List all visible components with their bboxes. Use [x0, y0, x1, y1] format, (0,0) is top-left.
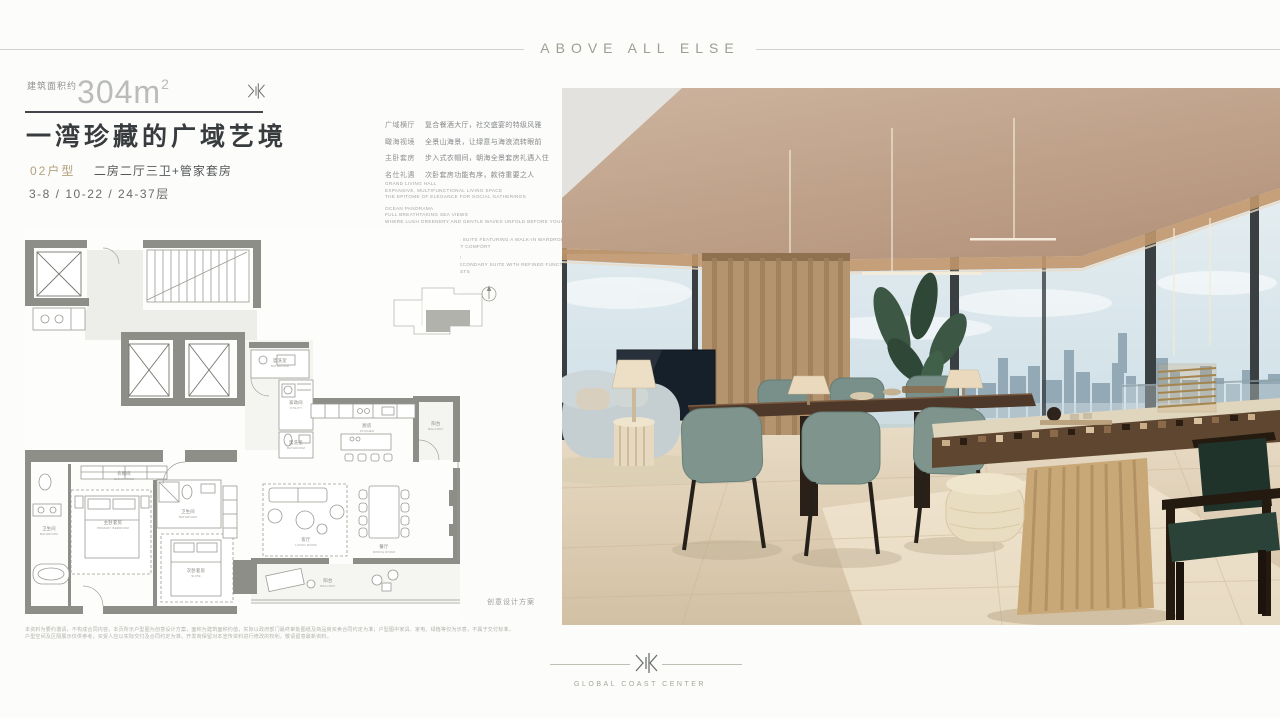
- room-label-bath2-en: BATHROOM: [287, 446, 305, 450]
- room-label-suite-en: SUITE: [191, 574, 201, 578]
- room-label-bath2: 盥洗室: [289, 439, 303, 446]
- room-label-suite: 次卧套房: [187, 567, 205, 574]
- feature-text: 全景山海景，让绿意与海浪流转眼前: [425, 137, 542, 147]
- disclaimer: 本资料为要约邀请，不构成合同内容。本页所示户型图为创意设计方案，面积为建筑面积约…: [25, 627, 547, 640]
- tagline: ABOVE ALL ELSE: [524, 40, 755, 56]
- feature-paragraph: OCEAN PANORAMA FULL BREATHTAKING SEA VIE…: [385, 206, 555, 226]
- footer-rule-right: [662, 664, 742, 665]
- feature-text: 复合餐酒大厅，社交盛宴的特级风雅: [425, 120, 542, 130]
- feature-row: 主卧套房 步入式衣帽间，朝海全景套房礼遇入住: [385, 153, 550, 163]
- brand-mark-icon: [246, 80, 266, 102]
- feature-label: 主卧套房: [385, 153, 417, 163]
- en-line: GRAND LIVING HALL: [385, 181, 555, 188]
- room-label-dining: 餐厅: [379, 543, 389, 550]
- unit-highlight: [426, 310, 470, 332]
- feature-row: 名仕礼遇 次卧套房功能有序，款待重要之人: [385, 170, 550, 180]
- room-label-powder: 盥洗室: [273, 357, 287, 364]
- room-label-suitebath: 卫生间: [181, 508, 195, 515]
- en-line: FULL BREATHTAKING SEA VIEWS: [385, 212, 555, 219]
- feature-paragraph: GRAND LIVING HALL EXPANSIVE, MULTIFUNCTI…: [385, 181, 555, 201]
- disclaimer-line: 户型空间及区隔展示仅供参考，买受人应以实际交付及合同约定为准。开发商保留对本宣传…: [25, 634, 547, 641]
- room-label-balcony-bottom-en: BALCONY: [320, 584, 335, 588]
- room-label-primary: 主卧套房: [104, 519, 122, 526]
- title-rule: [25, 111, 263, 113]
- feature-row: 瞰海视境 全景山海景，让绿意与海浪流转眼前: [385, 137, 550, 147]
- room-label-kitchen: 厨房: [362, 422, 371, 429]
- page-title: 一湾珍藏的广域艺境: [26, 117, 287, 153]
- slat-screen: [1158, 364, 1216, 412]
- room-label-balcony-side: 阳台: [431, 420, 440, 427]
- feature-label: 瞰海视境: [385, 137, 417, 147]
- interior-photo-art: [562, 88, 1280, 625]
- feature-text: 步入式衣帽间，朝海全景套房礼遇入住: [425, 153, 549, 163]
- unit-row: 02户型 二房二厅三卫+管家套房: [30, 162, 232, 180]
- en-line: EXPANSIVE, MULTIFUNCTIONAL LIVING SPACE: [385, 188, 555, 195]
- room-label-utility-en: UTILITY: [290, 406, 302, 410]
- room-label-dining-en: DINING ROOM: [373, 550, 396, 554]
- brochure-page: ABOVE ALL ELSE 建筑面积约304m2 一湾珍藏的广域艺境 02户型…: [0, 0, 1280, 718]
- room-label-powder-en: BATHROOM: [271, 364, 289, 368]
- key-plan: [388, 282, 500, 340]
- brand-mark-icon: [633, 651, 659, 675]
- feature-label: 广域横厅: [385, 120, 417, 130]
- room-label-kitchen-en: KITCHEN: [360, 429, 374, 433]
- room-label-masterbath-en: BATHROOM: [40, 532, 58, 536]
- interior-photo: [562, 88, 1280, 625]
- feature-list: 广域横厅 复合餐酒大厅，社交盛宴的特级风雅 瞰海视境 全景山海景，让绿意与海浪流…: [385, 120, 550, 186]
- room-label-cloakroom-en: CLOAKROOM: [114, 477, 135, 481]
- feature-label: 名仕礼遇: [385, 170, 417, 180]
- unit-description: 二房二厅三卫+管家套房: [94, 164, 232, 178]
- tagline-wrap: ABOVE ALL ELSE: [0, 40, 1280, 58]
- brand-name: GLOBAL COAST CENTER: [0, 681, 1280, 688]
- footer-rule-left: [550, 664, 630, 665]
- room-label-living-en: LIVING ROOM: [295, 543, 317, 547]
- area-value: 304m: [77, 74, 161, 110]
- area-row: 建筑面积约304m2: [27, 74, 169, 111]
- north-arrow-icon: [482, 286, 496, 302]
- room-label-balcony-side-en: BALCONY: [428, 427, 443, 431]
- stairs: [147, 250, 249, 302]
- feature-row: 广域横厅 复合餐酒大厅，社交盛宴的特级风雅: [385, 120, 550, 130]
- area-exponent: 2: [161, 76, 169, 92]
- room-label-balcony-bottom: 阳台: [323, 577, 332, 584]
- feature-text: 次卧套房功能有序，款待重要之人: [425, 170, 535, 180]
- room-label-primary-en: PRIMARY BEDROOM: [97, 526, 129, 530]
- ottoman: [946, 473, 1024, 542]
- en-line: THE EPITOME OF ELEGANCE FOR SOCIAL GATHE…: [385, 194, 555, 201]
- plan-note: 创意设计方案: [487, 597, 535, 607]
- room-label-suitebath-en: BATHROOM: [179, 515, 197, 519]
- room-label-utility: 家政间: [289, 399, 303, 406]
- unit-code: 02户型: [30, 164, 75, 178]
- room-label-living: 客厅: [301, 536, 311, 543]
- room-label-masterbath: 卫生间: [42, 525, 56, 532]
- area-prefix: 建筑面积约: [27, 81, 77, 91]
- side-table: [613, 417, 655, 466]
- en-line: OCEAN PANORAMA: [385, 206, 555, 213]
- room-label-cloakroom: 衣帽间: [117, 470, 131, 477]
- en-line: WHERE LUSH GREENERY AND GENTLE WAVES UNF…: [385, 219, 555, 226]
- floor-range: 3-8 / 10-22 / 24-37层: [29, 185, 170, 202]
- disclaimer-line: 本资料为要约邀请，不构成合同内容。本页所示户型图为创意设计方案，面积为建筑面积约…: [25, 627, 547, 634]
